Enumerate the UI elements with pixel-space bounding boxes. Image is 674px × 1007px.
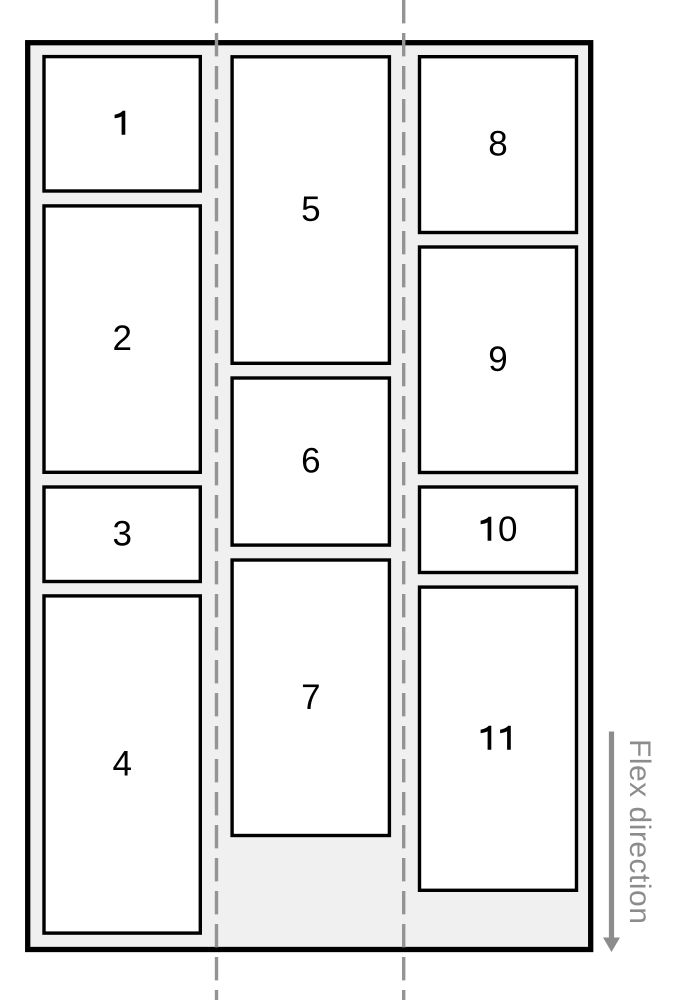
svg-text:9: 9	[488, 340, 507, 379]
svg-text:7: 7	[301, 678, 320, 717]
svg-text:8: 8	[488, 125, 507, 164]
svg-text:0: 0	[498, 510, 517, 549]
svg-text:2: 2	[112, 319, 131, 358]
svg-text:4: 4	[112, 745, 131, 784]
svg-text:3: 3	[112, 514, 131, 553]
svg-text:5: 5	[301, 190, 320, 229]
svg-text:Flex direction: Flex direction	[623, 739, 656, 924]
svg-text:6: 6	[301, 442, 320, 481]
